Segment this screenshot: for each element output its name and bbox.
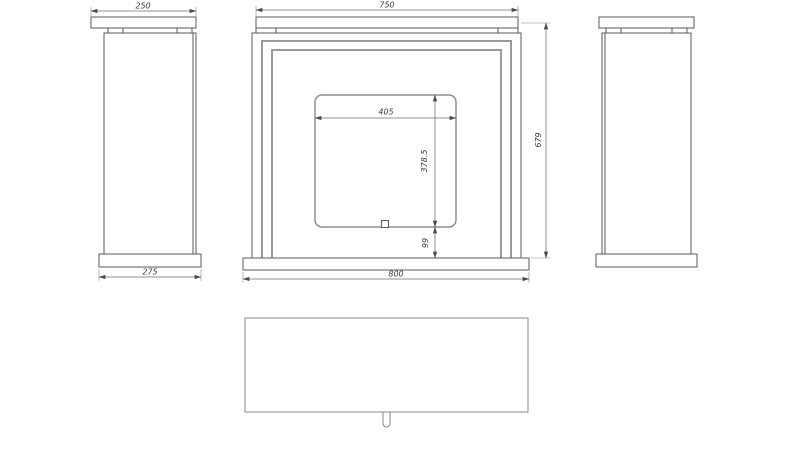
- dim-label-base-width: 800: [388, 270, 403, 279]
- dim-label-column-base-depth: 275: [142, 268, 157, 277]
- dim-overall-height: 679: [521, 23, 550, 258]
- dim-label-opening-width: 405: [378, 108, 393, 117]
- dim-label-opening-height: 378.5: [420, 150, 429, 173]
- dim-column-top-depth: 250: [91, 2, 196, 17]
- side-view-left: 250 275: [91, 2, 201, 282]
- column-top-cap: [599, 17, 694, 28]
- cap-foot: [108, 28, 123, 33]
- burner-switch: [382, 221, 389, 228]
- column-top-cap: [91, 17, 196, 28]
- cap-foot: [606, 28, 621, 33]
- technical-drawing-page: 250 275 750: [0, 0, 800, 450]
- dim-top-shelf-width: 750: [256, 1, 518, 17]
- side-view-right: [596, 17, 697, 267]
- front-view: 750 405 378.5 99: [243, 1, 550, 284]
- dim-label-top-shelf-width: 750: [379, 1, 394, 10]
- dim-column-base-depth: 275: [99, 268, 201, 282]
- cap-foot: [672, 28, 687, 33]
- dim-label-overall-height: 679: [534, 132, 543, 147]
- column-body: [104, 33, 196, 254]
- fireplace-technical-drawing: 250 275 750: [0, 0, 800, 450]
- dim-label-opening-base-offset: 99: [421, 238, 430, 248]
- cap-foot: [177, 28, 192, 33]
- dim-opening-height: 378.5: [420, 95, 435, 227]
- column-plinth: [596, 254, 697, 267]
- plan-view: [245, 318, 528, 427]
- shelf-foot: [256, 28, 276, 33]
- shelf-outline: [245, 318, 528, 412]
- column-body: [602, 33, 691, 254]
- mantel-shelf: [256, 17, 518, 28]
- dim-opening-base-offset: 99: [421, 227, 435, 258]
- dim-label-column-top-depth: 250: [135, 2, 150, 11]
- base-plinth: [243, 258, 529, 270]
- switch-tab: [383, 412, 390, 427]
- shelf-foot: [498, 28, 518, 33]
- dim-base-width: 800: [243, 270, 529, 284]
- column-plinth: [99, 254, 201, 267]
